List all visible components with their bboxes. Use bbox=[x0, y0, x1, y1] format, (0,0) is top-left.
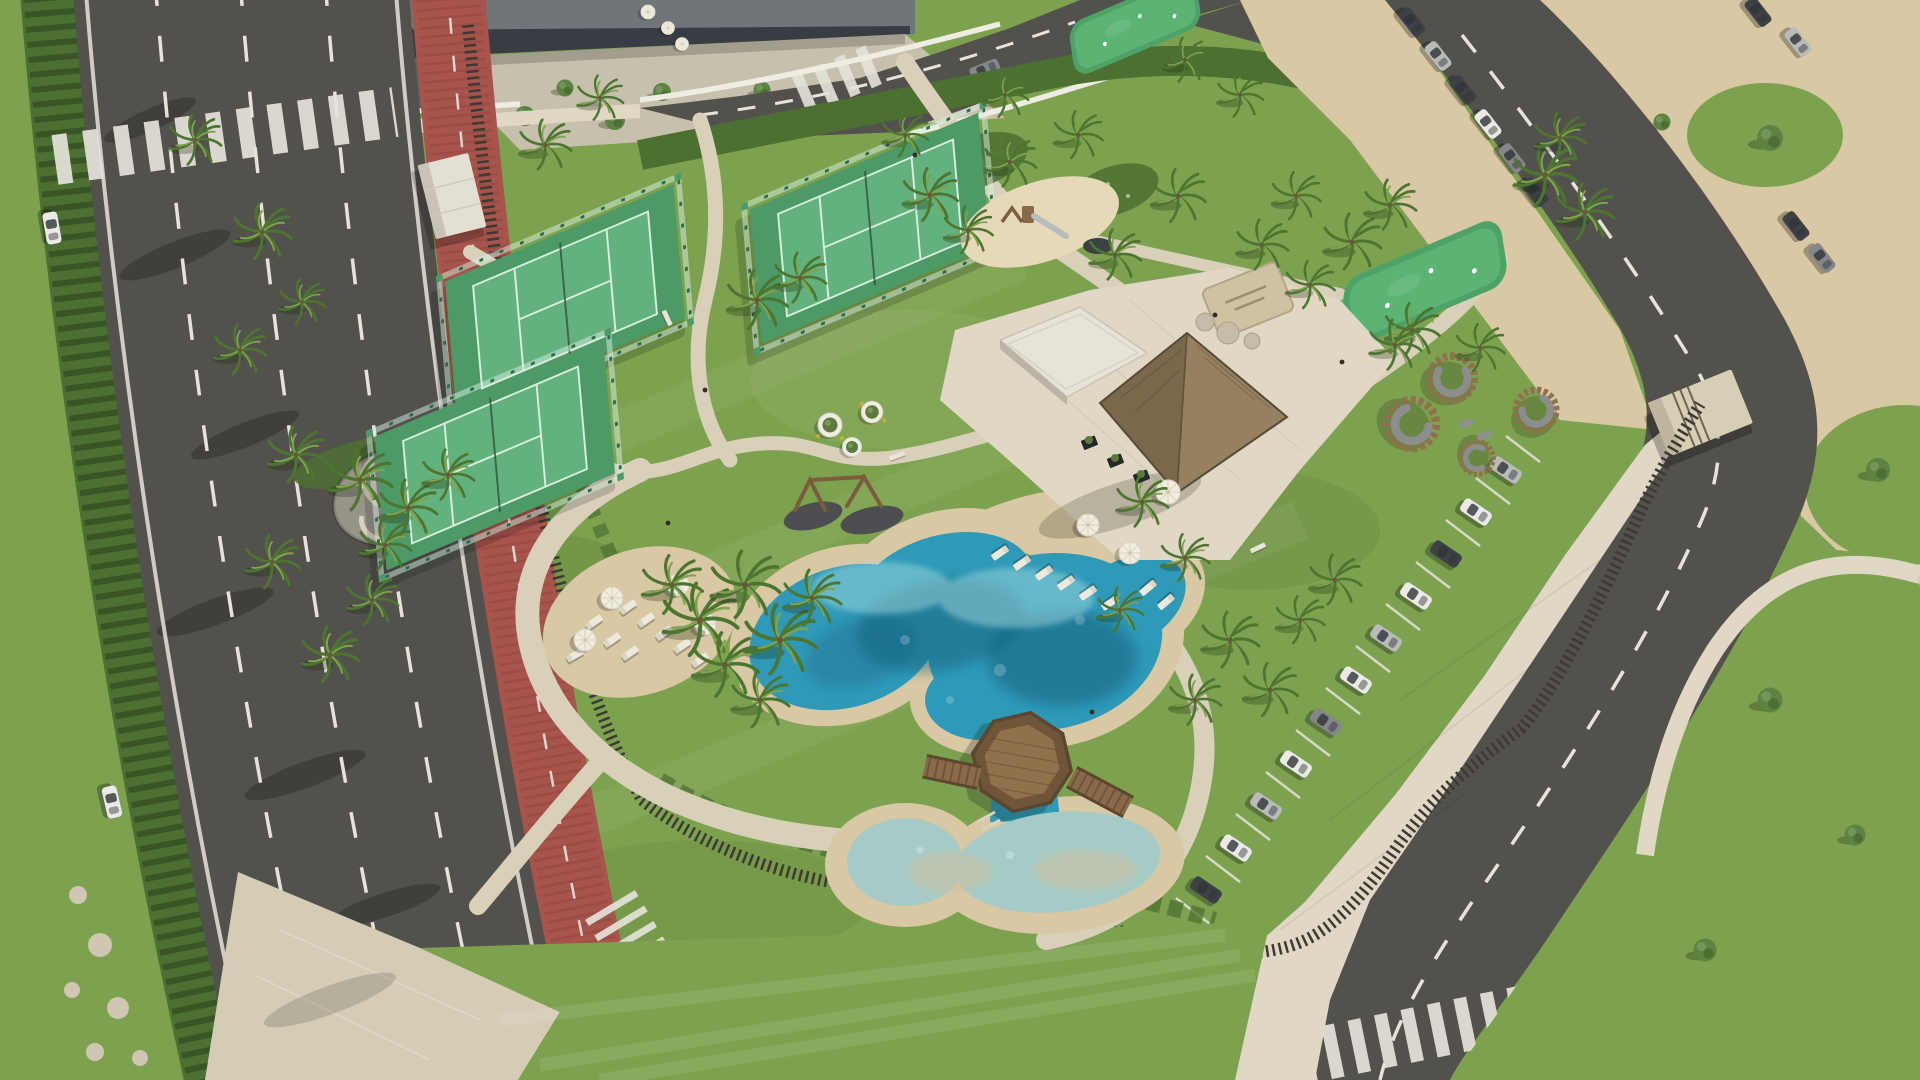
aerial-resort-render bbox=[0, 0, 1920, 1080]
aerial-scene bbox=[0, 0, 1920, 1080]
